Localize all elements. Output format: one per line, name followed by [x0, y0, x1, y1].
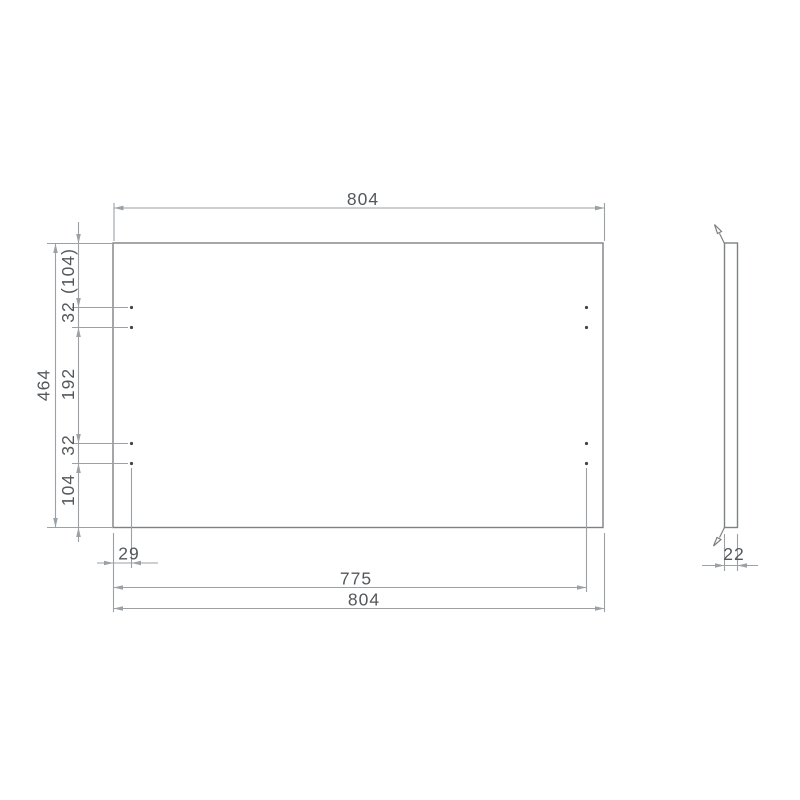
flag-triangle-icon — [715, 225, 722, 234]
dim-label-top-margin-ref: (104) — [58, 248, 78, 294]
hole-dot — [585, 462, 588, 465]
arrowhead — [114, 606, 124, 611]
panel-side-outline — [725, 243, 738, 528]
flag-leader-line — [720, 234, 725, 244]
dimension-thickness: 22 — [702, 534, 758, 571]
dim-label-hole-column-span: 775 — [340, 569, 372, 589]
dim-label-top-width: 804 — [347, 189, 379, 209]
arrowhead — [114, 585, 124, 590]
dim-label-overall-height: 464 — [34, 369, 54, 401]
dim-label-bottom-margin: 104 — [58, 474, 78, 506]
arrowhead-right — [595, 206, 605, 211]
arrowhead — [76, 528, 81, 538]
dim-label-hole-edge-offset: 29 — [118, 544, 139, 564]
drawing-svg: 804 464 (104) 32 192 32 104 — [0, 0, 800, 800]
side-view: 22 — [702, 225, 758, 572]
arrowhead — [595, 606, 605, 611]
hole-dot — [130, 306, 133, 309]
edge-banding-flag-top — [715, 225, 725, 244]
hole-dot — [585, 306, 588, 309]
arrowhead-bottom — [53, 518, 58, 528]
arrowhead — [76, 464, 81, 474]
flag-leader-line — [720, 528, 725, 538]
arrowhead — [76, 328, 81, 338]
hole-dot — [130, 462, 133, 465]
hole-dot — [585, 326, 588, 329]
dim-label-hole-pitch-top: 32 — [58, 301, 78, 322]
dimension-bottom-group: 29 775 804 — [97, 468, 605, 612]
hole-dot — [585, 442, 588, 445]
hole-dot — [130, 442, 133, 445]
dim-label-overall-width: 804 — [348, 590, 380, 610]
dim-label-thickness: 22 — [723, 544, 744, 564]
panel-front-outline — [113, 243, 603, 528]
hole-dot — [130, 326, 133, 329]
dimension-left-chain: (104) 32 192 32 104 — [58, 222, 128, 542]
dim-label-hole-pitch-bottom: 32 — [58, 434, 78, 455]
front-view — [113, 243, 603, 528]
dimension-top-width: 804 — [114, 189, 605, 241]
arrowhead — [104, 561, 114, 566]
technical-drawing-page: 804 464 (104) 32 192 32 104 — [0, 0, 800, 800]
flag-triangle-icon — [714, 538, 722, 547]
dim-label-middle-span: 192 — [58, 368, 78, 400]
arrowhead — [76, 234, 81, 244]
arrowhead — [577, 585, 587, 590]
arrowhead-left — [114, 206, 124, 211]
